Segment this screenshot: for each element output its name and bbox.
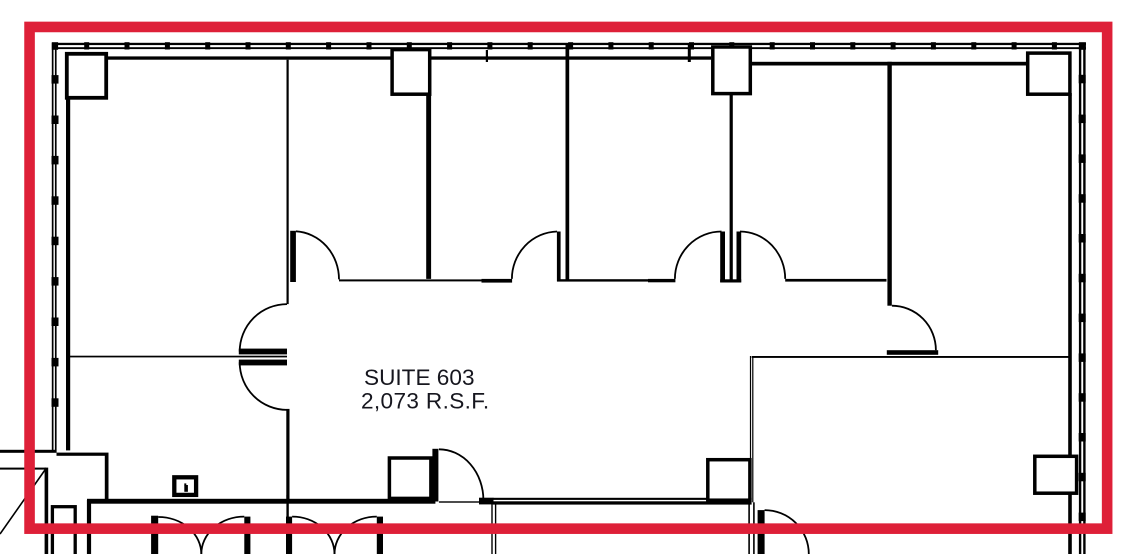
svg-text:2,073 R.S.F.: 2,073 R.S.F.: [361, 388, 490, 413]
svg-text:SUITE 603: SUITE 603: [364, 365, 475, 390]
